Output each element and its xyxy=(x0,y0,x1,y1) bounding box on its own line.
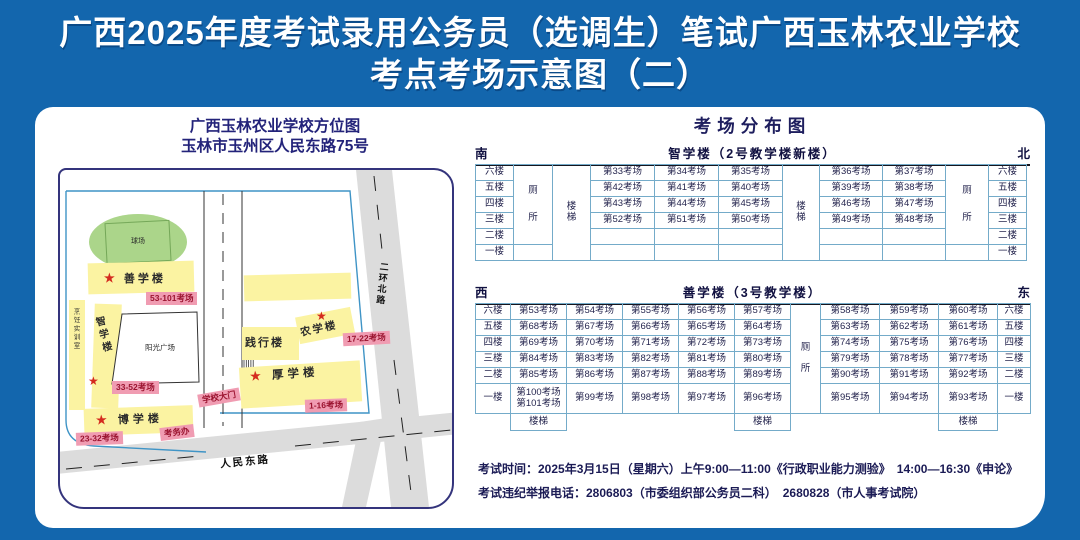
stairs-cell: 楼梯 xyxy=(939,414,998,431)
room-cell: 第82考场 xyxy=(623,352,679,368)
floor-cell: 二楼 xyxy=(476,368,511,384)
room-cell: 第78考场 xyxy=(880,352,939,368)
room-cell: 第34考场 xyxy=(655,165,719,181)
jianxing-label: 践行楼 xyxy=(245,334,284,350)
room-cell: 第100考场第101考场 xyxy=(511,384,567,414)
room-cell xyxy=(719,229,783,245)
room-cell: 第77考场 xyxy=(939,352,998,368)
toilet-cell: 厕所 xyxy=(946,165,989,245)
toilet-cell: 厕所 xyxy=(791,304,821,414)
room-cell: 第61考场 xyxy=(939,320,998,336)
room-cell: 第49考场 xyxy=(820,213,883,229)
boxue-rooms-tag: 23-32考场 xyxy=(76,431,123,445)
room-cell: 第39考场 xyxy=(820,181,883,197)
empty-cell xyxy=(679,414,735,431)
room-cell: 第66考场 xyxy=(623,320,679,336)
room-cell: 第91考场 xyxy=(880,368,939,384)
empty-cell xyxy=(791,414,821,431)
empty-cell xyxy=(821,414,880,431)
nongxue-rooms-tag: 17-22考场 xyxy=(343,331,390,346)
room-cell: 第38考场 xyxy=(883,181,946,197)
room-cell: 第96考场 xyxy=(735,384,791,414)
floor-cell: 四楼 xyxy=(476,336,511,352)
room-cell: 第79考场 xyxy=(821,352,880,368)
room-cell: 第87考场 xyxy=(623,368,679,384)
floor-cell: 四楼 xyxy=(989,197,1027,213)
houxue-rooms-tag: 1-16考场 xyxy=(305,398,347,412)
floor-cell: 六楼 xyxy=(989,165,1027,181)
room-cell: 第71考场 xyxy=(623,336,679,352)
floor-cell: 五楼 xyxy=(998,320,1031,336)
room-cell: 第33考场 xyxy=(591,165,655,181)
room-cell: 第72考场 xyxy=(679,336,735,352)
empty-cell xyxy=(623,414,679,431)
room-cell: 第97考场 xyxy=(679,384,735,414)
room-cell: 第98考场 xyxy=(623,384,679,414)
pengren-label: 烹饪实训室 xyxy=(70,308,80,351)
empty-cell xyxy=(567,414,623,431)
room-cell: 第37考场 xyxy=(883,165,946,181)
floor-cell: 二楼 xyxy=(998,368,1031,384)
distribution-title: 考场分布图 xyxy=(475,113,1030,138)
room-cell: 第84考场 xyxy=(511,352,567,368)
room-cell: 第89考场 xyxy=(735,368,791,384)
report-phone-line: 考试违纪举报电话：2806803（市委组织部公务员二科） 2680828（市人事… xyxy=(478,481,1043,505)
room-cell: 第90考场 xyxy=(821,368,880,384)
room-cell: 第50考场 xyxy=(719,213,783,229)
exam-info: 考试时间：2025年3月15日（星期六）上午9:00—11:00《行政职业能力测… xyxy=(478,457,1043,505)
room-cell: 第46考场 xyxy=(820,197,883,213)
map-title: 广西玉林农业学校方位图 玉林市玉州区人民东路75号 xyxy=(95,117,455,157)
room-cell: 第62考场 xyxy=(880,320,939,336)
room-cell: 第57考场 xyxy=(735,304,791,320)
room-cell: 第51考场 xyxy=(655,213,719,229)
room-cell: 第64考场 xyxy=(735,320,791,336)
zhixue-rooms-tag: 33-52考场 xyxy=(112,381,159,394)
room-cell: 第92考场 xyxy=(939,368,998,384)
floor-cell: 一楼 xyxy=(998,384,1031,414)
star-icon: ★ xyxy=(96,413,111,428)
main-title: 广西2025年度考试录用公务员（选调生）笔试广西玉林农业学校 考点考场示意图（二… xyxy=(0,12,1080,96)
room-cell: 第47考场 xyxy=(883,197,946,213)
room-cell xyxy=(820,245,883,261)
room-cell: 第68考场 xyxy=(511,320,567,336)
content-panel: 广西玉林农业学校方位图 玉林市玉州区人民东路75号 xyxy=(35,107,1045,528)
shanxue-building-table: 六楼第53考场第54考场第55考场第56考场第57考场厕所第58考场第59考场第… xyxy=(475,303,1031,431)
room-cell: 第74考场 xyxy=(821,336,880,352)
floor-cell: 一楼 xyxy=(476,245,514,261)
room-cell xyxy=(655,245,719,261)
empty-cell xyxy=(998,414,1031,431)
room-cell: 第95考场 xyxy=(821,384,880,414)
ballfield-label: 球场 xyxy=(118,236,158,246)
room-cell: 第81考场 xyxy=(679,352,735,368)
room-cell xyxy=(883,245,946,261)
poster: 广西2025年度考试录用公务员（选调生）笔试广西玉林农业学校 考点考场示意图（二… xyxy=(0,0,1080,540)
room-cell: 第65考场 xyxy=(679,320,735,336)
room-cell: 第40考场 xyxy=(719,181,783,197)
floor-cell: 二楼 xyxy=(476,229,514,245)
floor-cell: 三楼 xyxy=(998,352,1031,368)
room-cell: 第85考场 xyxy=(511,368,567,384)
stairs-cell: 楼梯 xyxy=(783,165,820,261)
room-cell: 第44考场 xyxy=(655,197,719,213)
room-cell: 第93考场 xyxy=(939,384,998,414)
stairs-cell: 楼梯 xyxy=(735,414,791,431)
room-cell: 第63考场 xyxy=(821,320,880,336)
room-cell: 第83考场 xyxy=(567,352,623,368)
floor-cell: 一楼 xyxy=(476,384,511,414)
floor-cell: 四楼 xyxy=(998,336,1031,352)
room-cell: 第56考场 xyxy=(679,304,735,320)
floor-cell: 六楼 xyxy=(998,304,1031,320)
room-cell xyxy=(591,229,655,245)
star-icon: ★ xyxy=(104,271,118,285)
floor-cell: 二楼 xyxy=(989,229,1027,245)
main-title-line1: 广西2025年度考试录用公务员（选调生）笔试广西玉林农业学校 xyxy=(0,12,1080,54)
map-title-line1: 广西玉林农业学校方位图 xyxy=(95,117,455,137)
campus-map: 球场 ★ 善学楼 53-101考场 烹饪实训室 智学楼 ★ 33-52考场 阳光… xyxy=(58,168,454,509)
room-cell: 第54考场 xyxy=(567,304,623,320)
empty-cell xyxy=(880,414,939,431)
floor-cell: 六楼 xyxy=(476,304,511,320)
room-cell: 第55考场 xyxy=(623,304,679,320)
empty-cell xyxy=(476,414,511,431)
stairs-cell: 楼梯 xyxy=(511,414,567,431)
direction-west: 西 xyxy=(475,282,488,301)
direction-south: 南 xyxy=(475,143,488,162)
room-cell: 第76考场 xyxy=(939,336,998,352)
room-cell: 第94考场 xyxy=(880,384,939,414)
direction-east: 东 xyxy=(1017,282,1030,301)
north-strip-building-shape xyxy=(244,273,352,302)
floor-cell: 五楼 xyxy=(476,181,514,197)
boxue-label: ★ 博学楼 xyxy=(96,410,163,428)
floor-cell: 四楼 xyxy=(476,197,514,213)
room-cell xyxy=(514,245,553,261)
floor-cell: 五楼 xyxy=(989,181,1027,197)
room-cell: 第58考场 xyxy=(821,304,880,320)
floor-cell: 三楼 xyxy=(476,352,511,368)
room-cell: 第45考场 xyxy=(719,197,783,213)
room-cell xyxy=(591,245,655,261)
toilet-cell: 厕所 xyxy=(514,165,553,245)
room-cell xyxy=(719,245,783,261)
room-cell: 第43考场 xyxy=(591,197,655,213)
room-cell: 第67考场 xyxy=(567,320,623,336)
shanxue-rooms-tag: 53-101考场 xyxy=(146,292,197,305)
direction-north: 北 xyxy=(1017,143,1030,162)
room-cell: 第70考场 xyxy=(567,336,623,352)
room-cell xyxy=(883,229,946,245)
floor-cell: 三楼 xyxy=(476,213,514,229)
floor-cell: 一楼 xyxy=(989,245,1027,261)
room-cell: 第60考场 xyxy=(939,304,998,320)
room-cell: 第75考场 xyxy=(880,336,939,352)
room-cell: 第86考场 xyxy=(567,368,623,384)
room-cell: 第69考场 xyxy=(511,336,567,352)
room-cell: 第52考场 xyxy=(591,213,655,229)
room-cell: 第73考场 xyxy=(735,336,791,352)
room-cell xyxy=(820,229,883,245)
room-cell: 第80考场 xyxy=(735,352,791,368)
floor-cell: 三楼 xyxy=(989,213,1027,229)
main-title-line2: 考点考场示意图（二） xyxy=(0,54,1080,96)
stairs-cell: 楼梯 xyxy=(553,165,591,261)
zhixue-building-table: 六楼厕所楼梯第33考场第34考场第35考场楼梯第36考场第37考场厕所六楼五楼第… xyxy=(475,164,1027,261)
map-title-line2: 玉林市玉州区人民东路75号 xyxy=(95,137,455,157)
room-cell: 第36考场 xyxy=(820,165,883,181)
shanxue-table-header: 西 善学楼（3号教学楼） 东 xyxy=(475,282,1030,305)
floor-cell: 六楼 xyxy=(476,165,514,181)
room-cell: 第99考场 xyxy=(567,384,623,414)
room-cell: 第41考场 xyxy=(655,181,719,197)
shanxue-label: ★ 善学楼 xyxy=(104,270,166,286)
room-cell: 第59考场 xyxy=(880,304,939,320)
star-icon: ★ xyxy=(88,374,99,388)
plaza-label: 阳光广场 xyxy=(130,342,190,353)
room-cell xyxy=(655,229,719,245)
shanxue-table-title: 善学楼（3号教学楼） xyxy=(488,282,1018,301)
room-cell: 第35考场 xyxy=(719,165,783,181)
room-cell: 第53考场 xyxy=(511,304,567,320)
zhixue-table-title: 智学楼（2号教学楼新楼） xyxy=(488,143,1018,162)
room-cell: 第42考场 xyxy=(591,181,655,197)
room-cell: 第88考场 xyxy=(679,368,735,384)
zhixue-table-header: 南 智学楼（2号教学楼新楼） 北 xyxy=(475,143,1030,166)
exam-time-line: 考试时间：2025年3月15日（星期六）上午9:00—11:00《行政职业能力测… xyxy=(478,457,1043,481)
room-cell: 第48考场 xyxy=(883,213,946,229)
floor-cell: 五楼 xyxy=(476,320,511,336)
room-cell xyxy=(946,245,989,261)
star-icon: ★ xyxy=(250,368,266,383)
